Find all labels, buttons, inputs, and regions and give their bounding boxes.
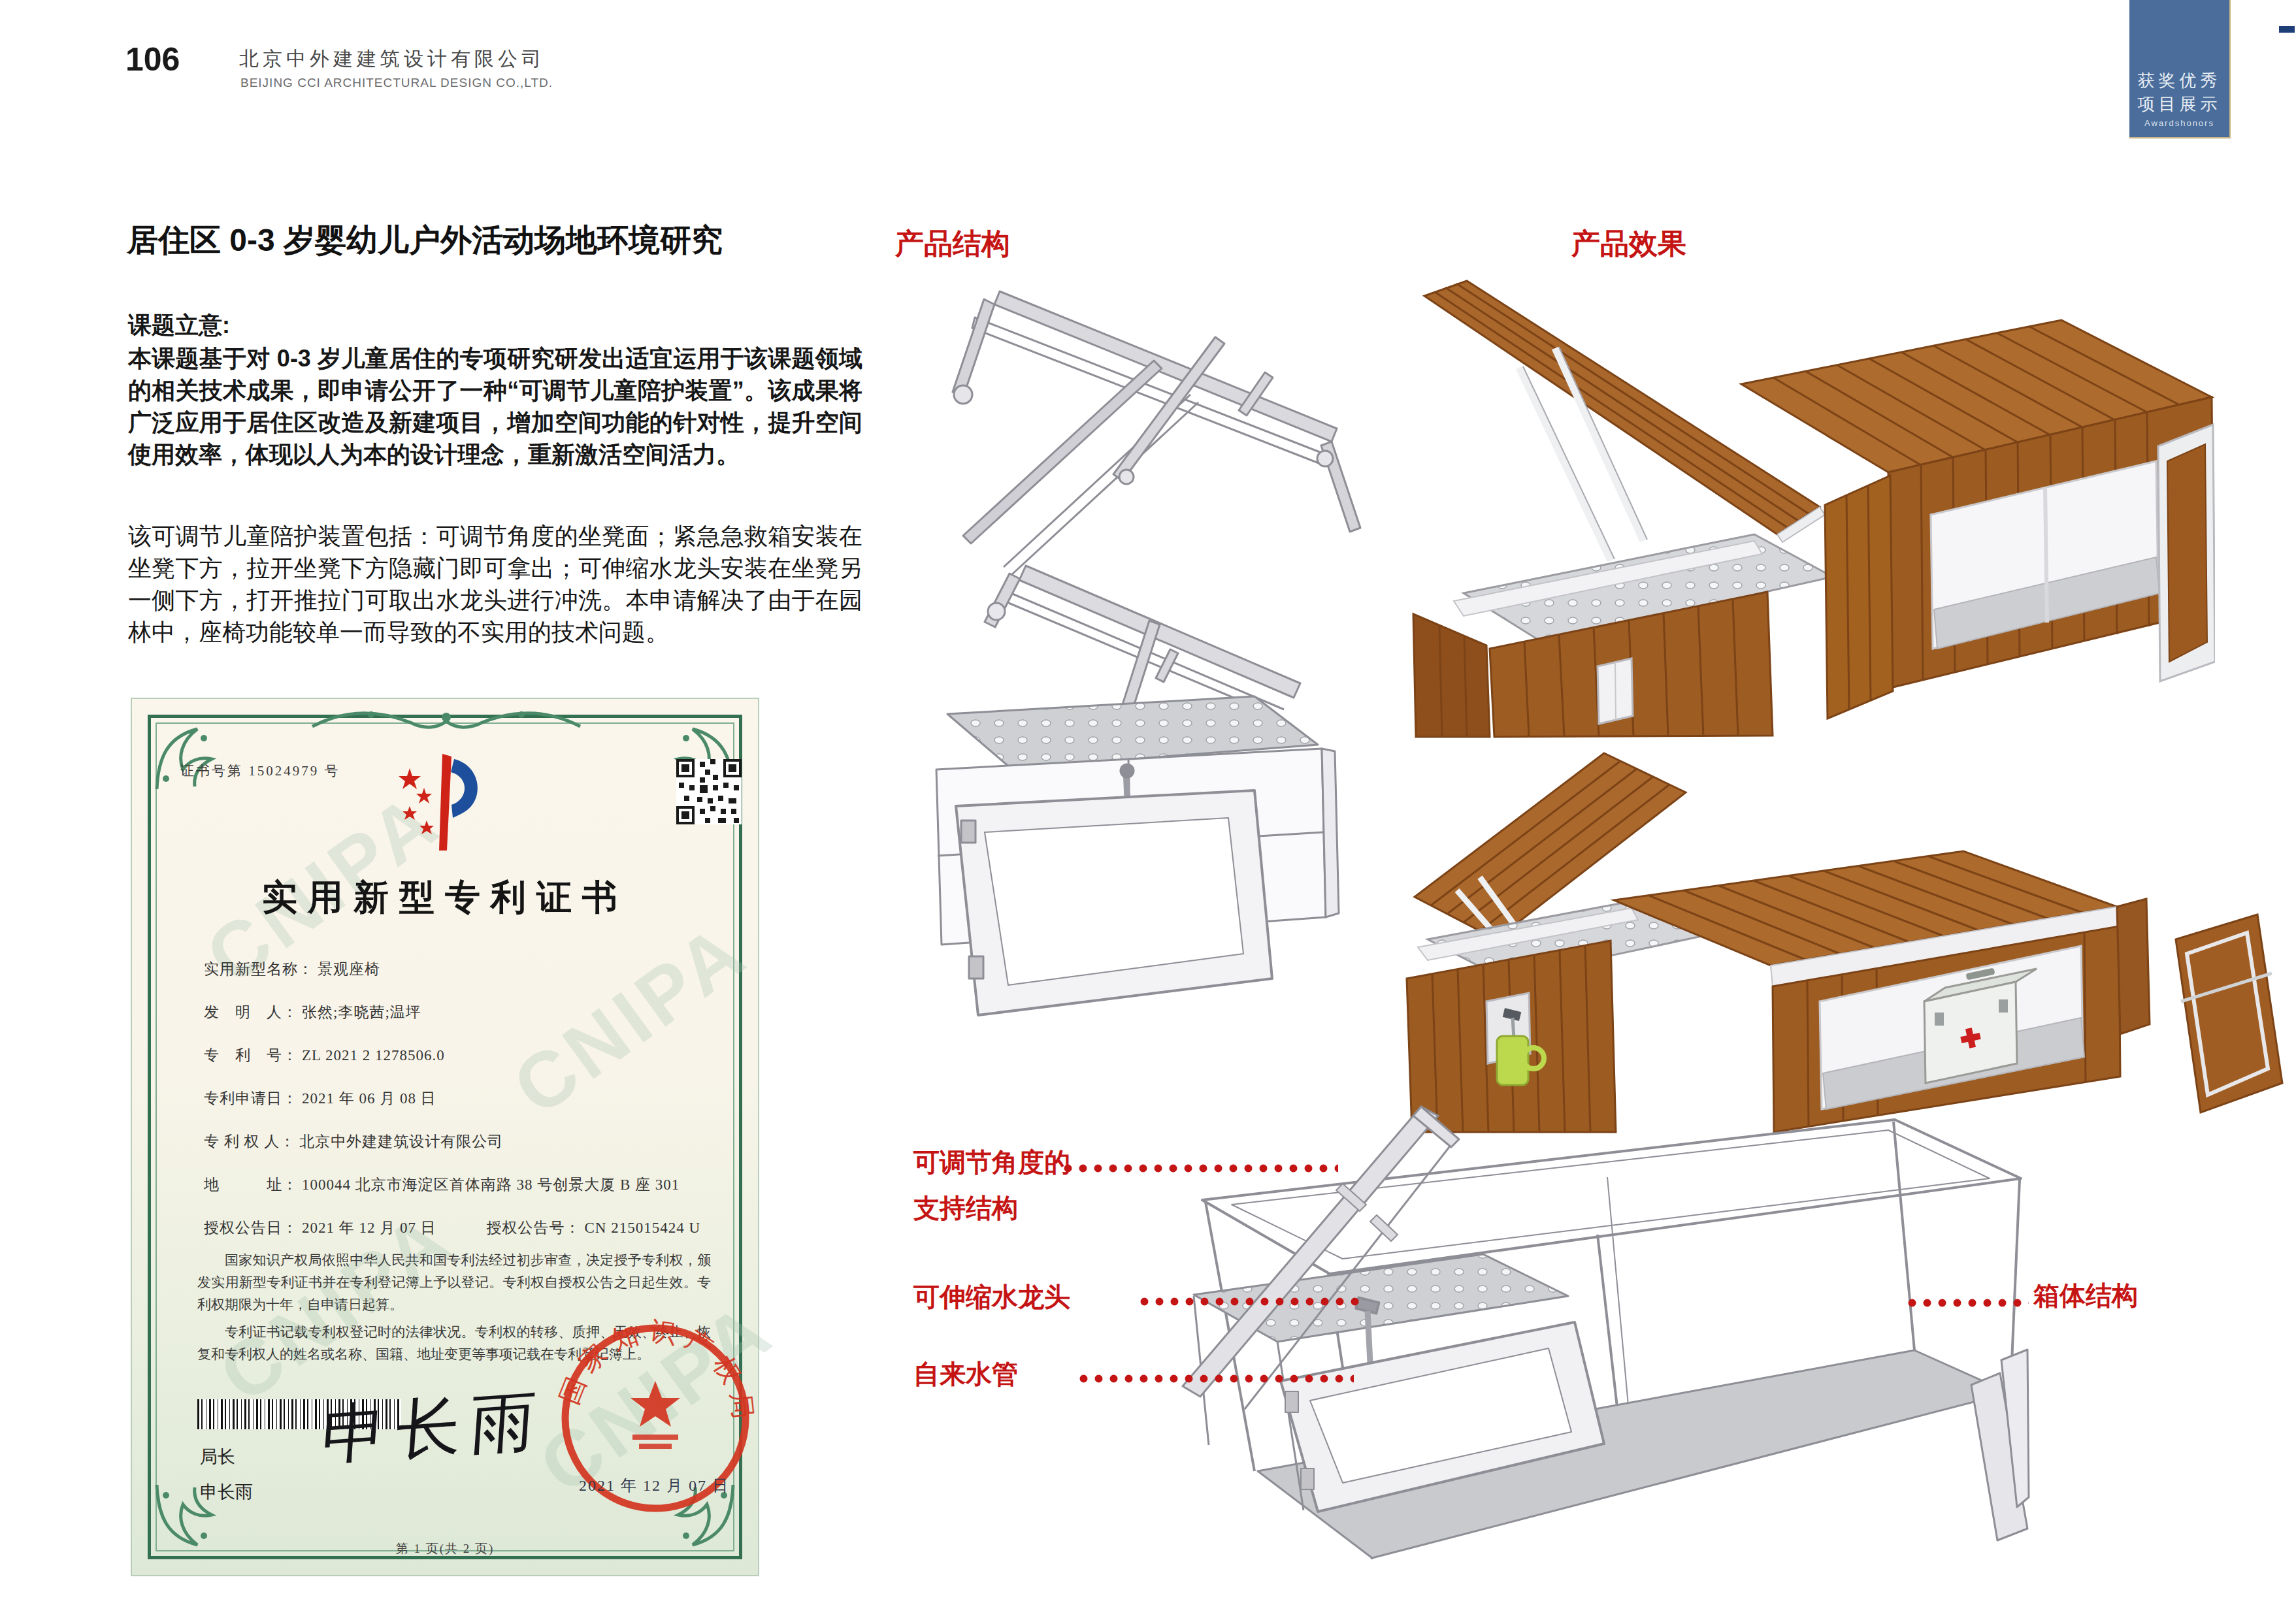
certificate-page-info: 第 1 页(共 2 页): [132, 1540, 758, 1557]
long-frame-drawing: [1147, 1079, 2030, 1564]
director-name: 申长雨: [200, 1480, 253, 1504]
figure-long-frame: [1147, 1079, 2030, 1564]
field-value: 景观座椅: [318, 961, 380, 977]
field-label: 地 址：: [204, 1176, 298, 1193]
paragraph-description: 该可调节儿童陪护装置包括：可调节角度的坐凳面；紧急急救箱安装在坐凳下方，拉开坐凳…: [128, 520, 862, 648]
field-label: 授权公告日：: [204, 1220, 298, 1236]
qr-code-icon: [676, 759, 742, 824]
company-name-en: BEIJING CCI ARCHITECTURAL DESIGN CO.,LTD…: [240, 76, 553, 90]
tab-line3: Awardshonors: [2144, 118, 2214, 128]
field-label: 发 明 人：: [204, 1004, 298, 1020]
field-label: 实用新型名称：: [204, 961, 314, 977]
director-signature: 申长雨: [319, 1377, 548, 1482]
render-open-box-drawing: [1402, 280, 2215, 740]
patent-certificate: CNIPA CNIPA CNIPA CNIPA 证书号第 15024979 号: [131, 698, 759, 1576]
field-row: 实用新型名称：景观座椅: [204, 959, 700, 979]
field-row: 地 址：100044 北京市海淀区首体南路 38 号创景大厦 B 座 301: [204, 1175, 700, 1195]
field-row: 发 明 人：张然;李晓茜;温坪: [204, 1002, 700, 1022]
annotation-support-line2: 支持结构: [913, 1190, 1018, 1226]
corner-dash-decoration: [2279, 26, 2295, 33]
seal-date: 2021 年 12 月 07 日: [546, 1475, 762, 1496]
field-label: 授权公告号：: [487, 1220, 581, 1236]
field-row: 专利申请日：2021 年 06 月 08 日: [204, 1088, 700, 1109]
tab-line1: 获奖优秀: [2138, 69, 2222, 92]
figure-bench-frame: [898, 547, 1388, 1034]
certificate-title: 实用新型专利证书: [132, 874, 758, 922]
tab-line2: 项目展示: [2138, 92, 2222, 116]
field-value: ZL 2021 2 1278506.0: [302, 1047, 445, 1063]
page-canvas: 106 北京中外建建筑设计有限公司 BEIJING CCI ARCHITECTU…: [0, 0, 2296, 1622]
figure-render-lounger: [1388, 743, 2296, 1135]
annotation-support-line1: 可调节角度的: [913, 1144, 1070, 1180]
legal-paragraph-1: 国家知识产权局依照中华人民共和国专利法经过初步审查，决定授予专利权，颁发实用新型…: [197, 1249, 711, 1316]
label-product-structure: 产品结构: [895, 225, 1010, 263]
field-value: 2021 年 12 月 07 日: [302, 1220, 436, 1236]
field-row: 专 利 号：ZL 2021 2 1278506.0: [204, 1045, 700, 1065]
director-label: 局长: [200, 1445, 235, 1468]
certificate-number: 证书号第 15024979 号: [180, 762, 340, 780]
leader-support: [1064, 1164, 1338, 1173]
figure-folding-frame: [907, 280, 1371, 580]
figure-render-open-box: [1402, 280, 2215, 740]
field-row-grant: 授权公告日：2021 年 12 月 07 日 授权公告号：CN 21501542…: [204, 1218, 700, 1238]
field-value: 100044 北京市海淀区首体南路 38 号创景大厦 B 座 301: [302, 1176, 680, 1193]
company-name-cn: 北京中外建建筑设计有限公司: [239, 46, 545, 73]
field-label: 专 利 权 人：: [204, 1133, 295, 1150]
field-value: 北京中外建建筑设计有限公司: [299, 1133, 503, 1150]
field-label: 专 利 号：: [204, 1047, 298, 1063]
field-row: 专 利 权 人：北京中外建建筑设计有限公司: [204, 1131, 700, 1152]
leader-box: [1908, 1299, 2029, 1307]
label-product-effect: 产品效果: [1571, 225, 1686, 263]
annotation-pipe: 自来水管: [913, 1356, 1018, 1392]
annotation-faucet: 可伸缩水龙头: [913, 1279, 1070, 1315]
leader-faucet: [1140, 1297, 1362, 1306]
field-label: 专利申请日：: [204, 1090, 298, 1107]
field-value: CN 215015424 U: [585, 1220, 701, 1236]
cnipa-logo-icon: [390, 750, 488, 868]
folding-frame-drawing: [907, 280, 1371, 580]
paragraph-intent: 本课题基于对 0-3 岁儿童居住的专项研究研发出适宜运用于该课题领域的相关技术成…: [128, 342, 862, 470]
page-number: 106: [125, 41, 180, 78]
field-value: 2021 年 06 月 08 日: [302, 1090, 436, 1107]
awards-corner-tab: 获奖优秀 项目展示 Awardshonors: [2129, 0, 2231, 138]
section-heading: 课题立意:: [128, 310, 230, 342]
leader-pipe: [1079, 1374, 1354, 1383]
field-value: 张然;李晓茜;温坪: [302, 1004, 421, 1020]
annotation-box: 箱体结构: [2033, 1278, 2138, 1314]
bench-frame-drawing: [898, 547, 1388, 1034]
garland-ornament-icon: [306, 704, 587, 734]
article-title: 居住区 0-3 岁婴幼儿户外活动场地环境研究: [127, 219, 911, 261]
render-lounger-drawing: [1388, 743, 2296, 1135]
